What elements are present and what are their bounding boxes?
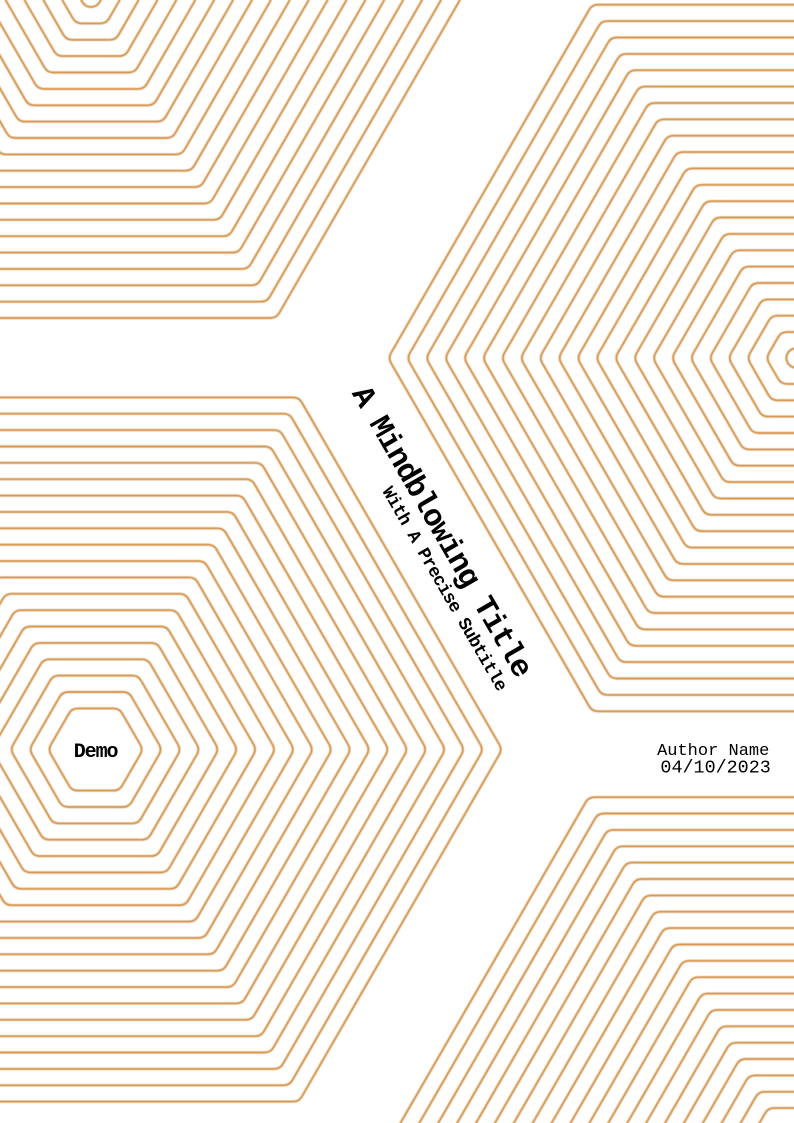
svg-text:04/10/2023: 04/10/2023: [660, 758, 770, 779]
svg-text:Demo: Demo: [74, 741, 119, 764]
